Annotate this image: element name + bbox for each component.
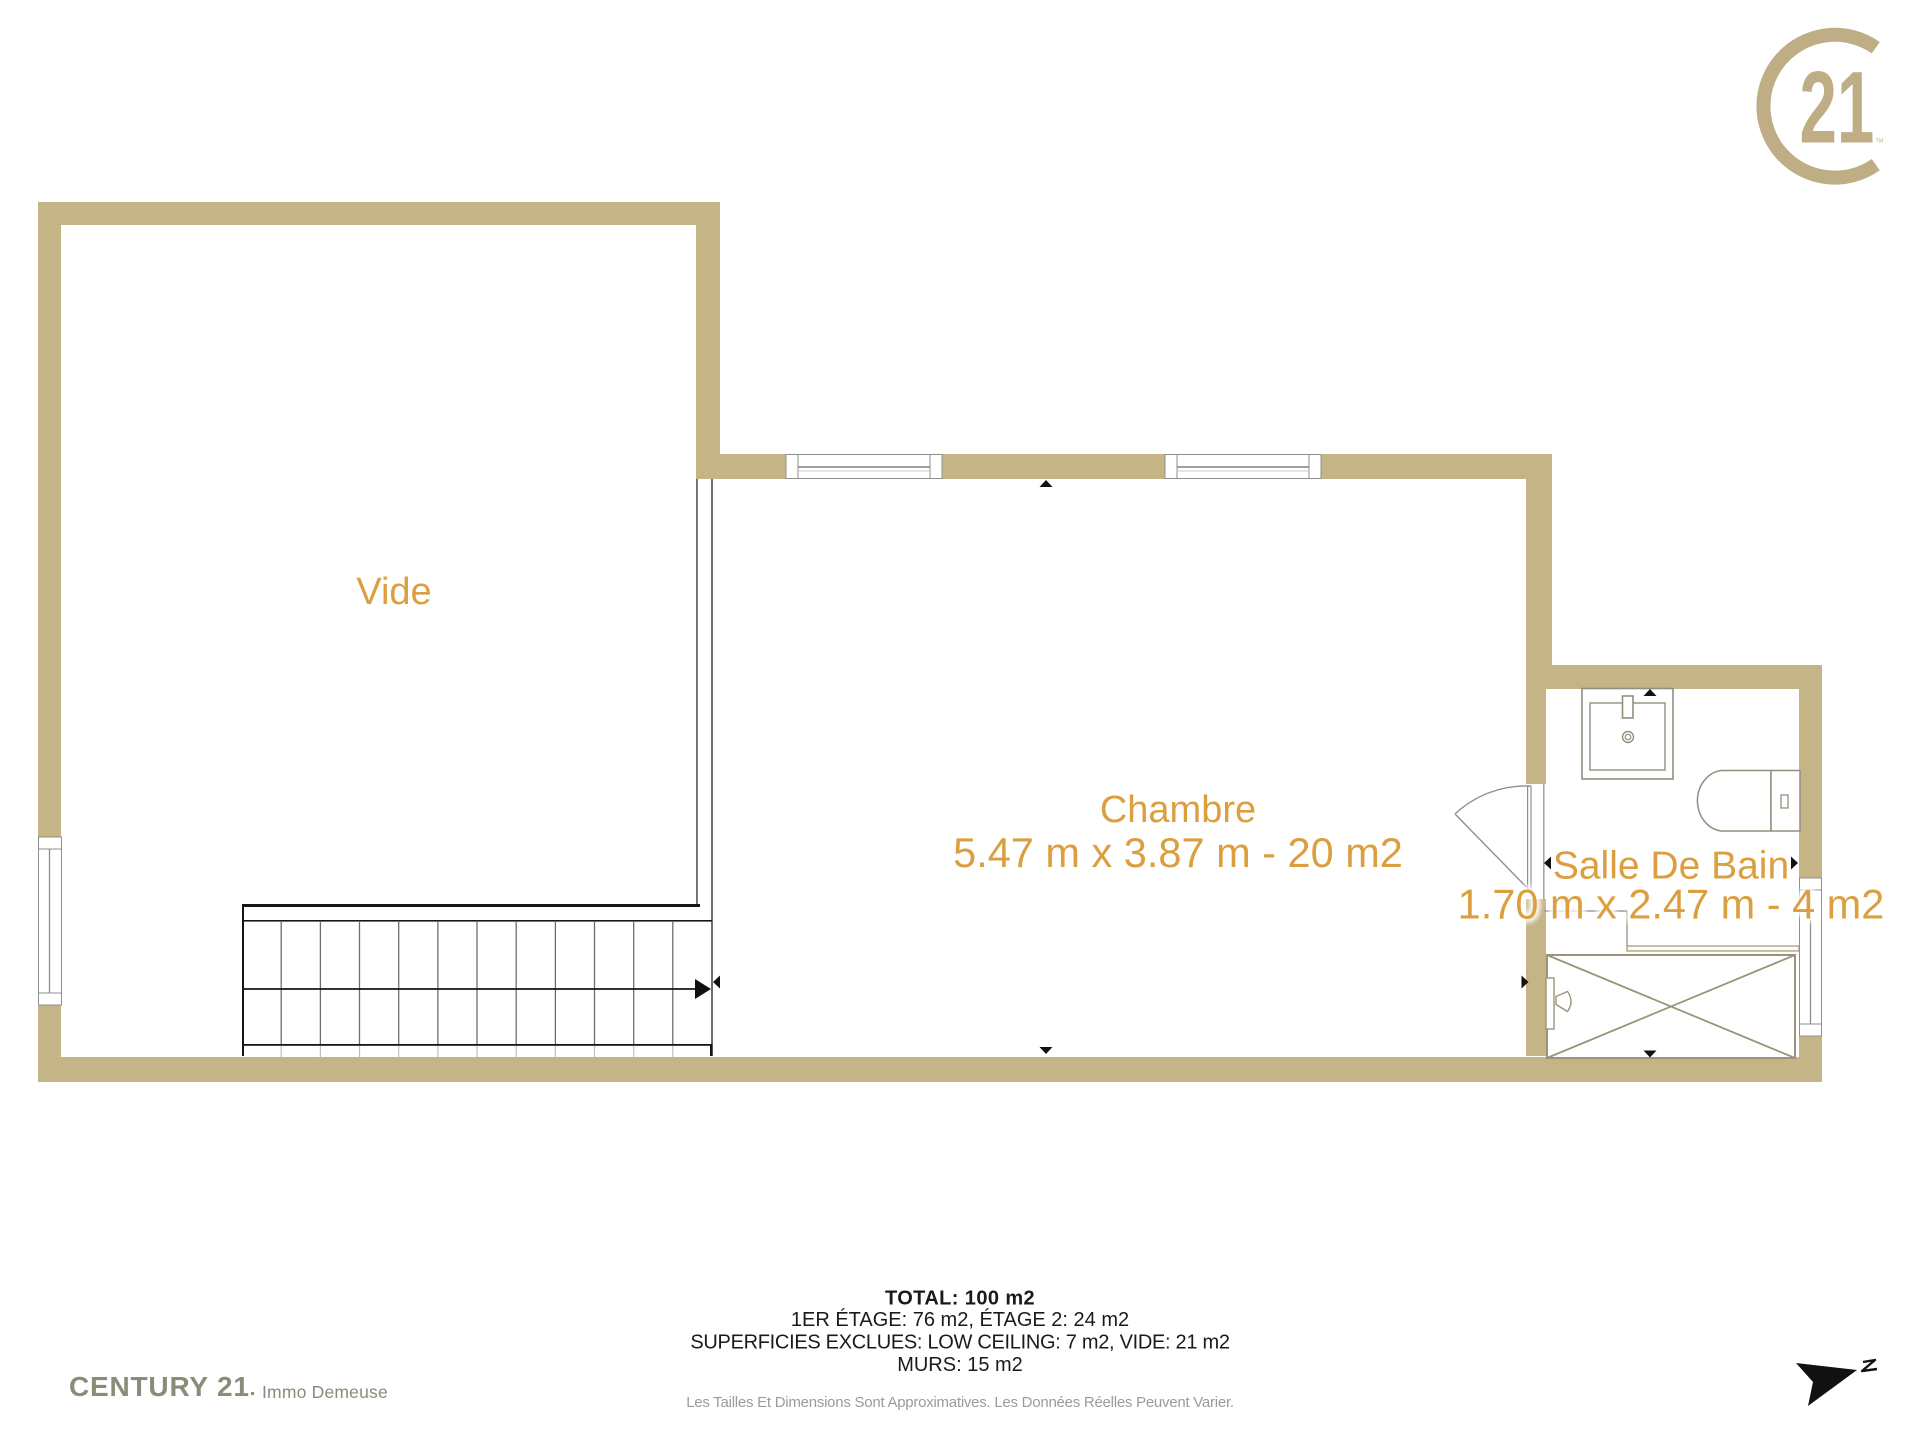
svg-text:MURS: 15 m2: MURS: 15 m2 xyxy=(897,1354,1023,1376)
svg-text:Vide: Vide xyxy=(356,571,431,613)
svg-text:Immo Demeuse: Immo Demeuse xyxy=(262,1382,388,1402)
svg-text:Les Tailles Et Dimensions Sont: Les Tailles Et Dimensions Sont Approxima… xyxy=(686,1394,1234,1411)
svg-text:5.47 m x 3.87 m - 20 m2: 5.47 m x 3.87 m - 20 m2 xyxy=(953,829,1403,876)
svg-text:21: 21 xyxy=(1799,52,1874,165)
svg-text:Chambre: Chambre xyxy=(1100,789,1256,831)
svg-text:CENTURY 21: CENTURY 21 xyxy=(69,1371,250,1402)
svg-text:TM: TM xyxy=(1876,139,1884,145)
svg-text:TOTAL: 100 m2: TOTAL: 100 m2 xyxy=(885,1288,1035,1310)
svg-text:1.70 m x 2.47 m - 4 m2: 1.70 m x 2.47 m - 4 m2 xyxy=(1458,881,1885,928)
svg-text:SUPERFICIES EXCLUES: LOW CEILI: SUPERFICIES EXCLUES: LOW CEILING: 7 m2, … xyxy=(690,1332,1229,1354)
svg-text:1ER ÉTAGE: 76 m2, ÉTAGE 2: 24: 1ER ÉTAGE: 76 m2, ÉTAGE 2: 24 m2 xyxy=(791,1308,1129,1331)
